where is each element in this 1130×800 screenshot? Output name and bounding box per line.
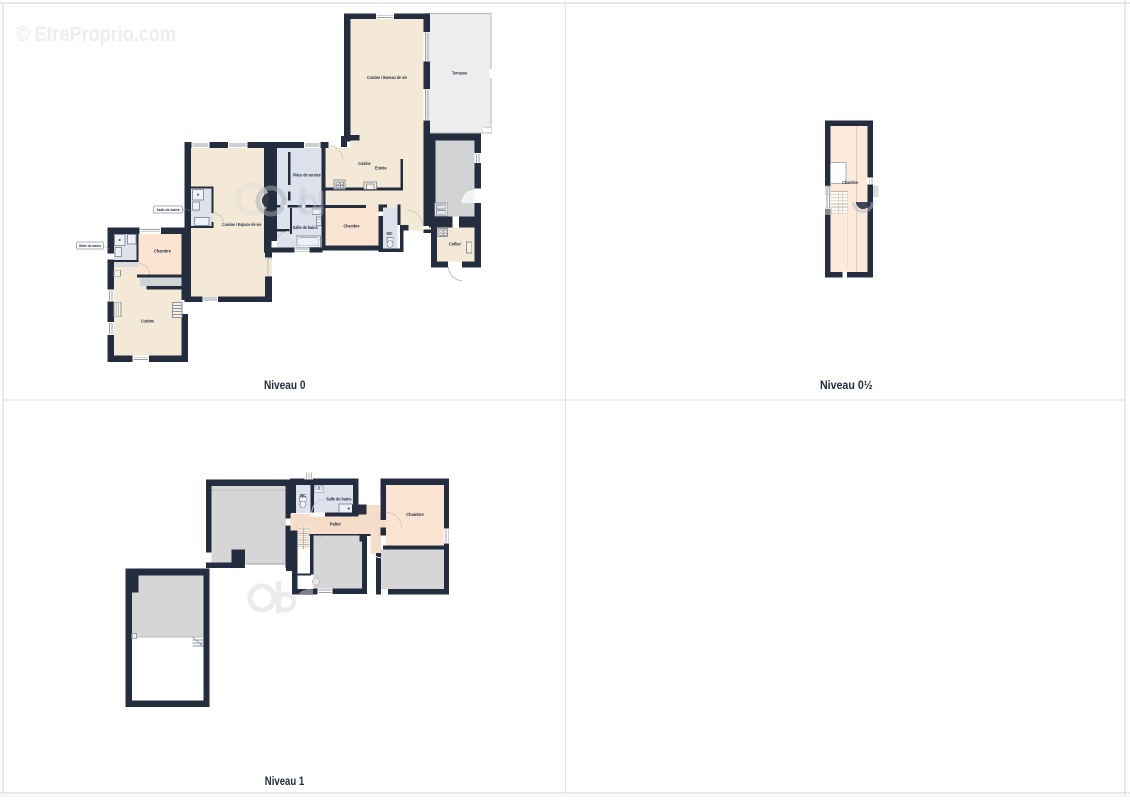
svg-text:Cellier: Cellier: [449, 241, 461, 246]
svg-text:Niveau 1: Niveau 1: [265, 774, 305, 788]
svg-text:Cuisine / Bureau de vie: Cuisine / Bureau de vie: [367, 75, 407, 80]
svg-text:Salle de bains: Salle de bains: [79, 243, 102, 248]
svg-text:WC: WC: [387, 231, 394, 236]
svg-text:Salle de bains: Salle de bains: [293, 225, 318, 230]
svg-text:© EtreProprio.com: © EtreProprio.com: [16, 23, 176, 46]
svg-text:Cuisine: Cuisine: [141, 319, 154, 324]
svg-text:Chambre: Chambre: [406, 512, 424, 517]
svg-text:Cuisine: Cuisine: [358, 161, 371, 166]
svg-text:Palier: Palier: [330, 522, 341, 527]
svg-text:Cuisine / Espace de vie: Cuisine / Espace de vie: [222, 222, 262, 227]
svg-text:Pièce de service: Pièce de service: [293, 172, 321, 177]
svg-text:Niveau 0: Niveau 0: [264, 378, 306, 392]
svg-text:WC: WC: [300, 493, 307, 498]
svg-text:Niveau 0½: Niveau 0½: [820, 378, 873, 392]
svg-text:Salle de bains: Salle de bains: [157, 207, 181, 212]
svg-text:Entrée: Entrée: [375, 166, 387, 171]
svg-text:Chambre: Chambre: [842, 180, 858, 185]
svg-text:Chambre: Chambre: [344, 224, 360, 229]
svg-text:Salle de bains: Salle de bains: [326, 497, 352, 502]
svg-text:Chambre: Chambre: [154, 249, 171, 254]
svg-text:Terrasse: Terrasse: [452, 70, 467, 75]
